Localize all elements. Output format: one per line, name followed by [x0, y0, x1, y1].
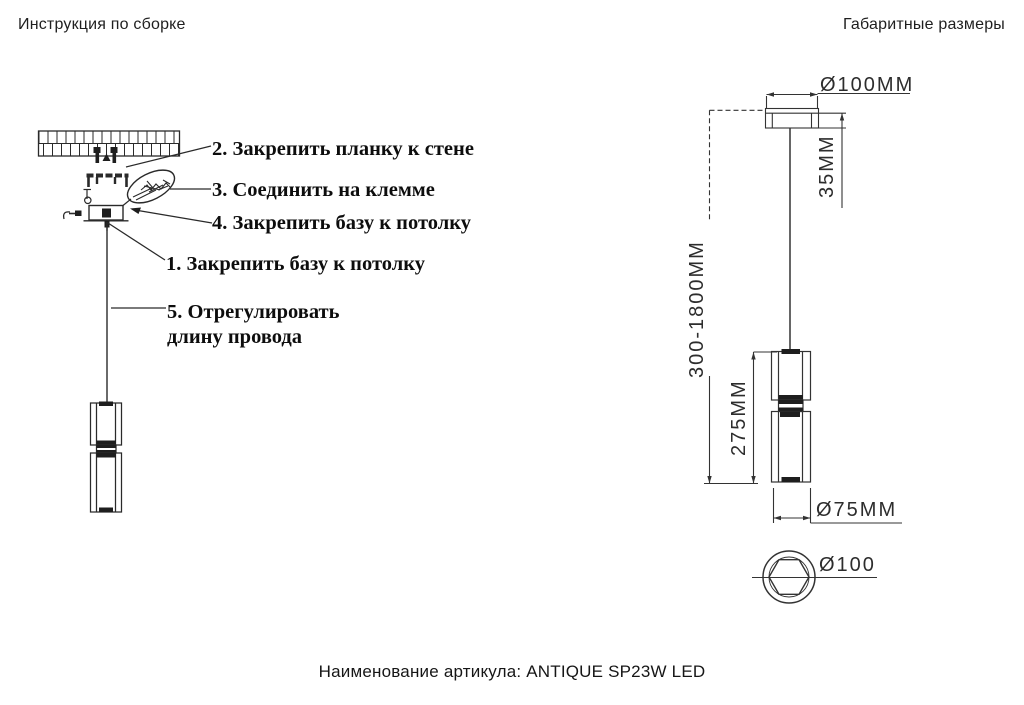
hook-icon — [84, 190, 92, 204]
wall-anchors — [94, 147, 118, 163]
leader-lines — [108, 146, 212, 308]
terminal-bubble-icon — [122, 163, 179, 209]
dim-base-bottom-diameter: Ø100 — [819, 555, 876, 576]
ceiling-hatch — [39, 131, 180, 156]
dim-body-height: 275MM — [729, 379, 750, 456]
technical-line-art — [0, 0, 1024, 705]
terminal-wires-icon — [133, 180, 170, 200]
dim-suspension-length: 300-1800MM — [687, 240, 708, 378]
mounting-plate — [87, 176, 129, 188]
dim-canopy-height: 35MM — [817, 134, 838, 198]
dim-lines-body-height — [751, 352, 777, 484]
dimensions-title: Габаритные размеры — [843, 16, 1005, 34]
ceiling-base — [84, 206, 129, 232]
dim-canopy-diameter: Ø100MM — [820, 75, 914, 96]
step-label-4: 4. Закрепить базу к потолку — [212, 211, 471, 236]
article-name-caption: Наименование артикула: ANTIQUE SP23W LED — [0, 662, 1024, 682]
step-label-2: 2. Закрепить планку к стене — [212, 137, 474, 162]
dim-shade-diameter: Ø75MM — [816, 500, 897, 521]
step-label-3: 3. Соединить на клемме — [212, 178, 435, 203]
screw-icon — [64, 211, 82, 220]
pendant-lamp-left — [91, 402, 122, 513]
dimension-drawing — [704, 92, 910, 603]
step-label-1: 1. Закрепить базу к потолку — [166, 252, 425, 277]
step-label-5-line1: 5. Отрегулировать — [167, 300, 339, 325]
assembly-title: Инструкция по сборке — [18, 16, 186, 34]
pendant-lamp-right — [772, 349, 811, 482]
canopy — [766, 109, 819, 129]
step-label-5: 5. Отрегулировать длину провода — [167, 300, 339, 349]
instruction-sheet: Инструкция по сборке Габаритные размеры … — [0, 0, 1024, 705]
step-label-5-line2: длину провода — [167, 325, 339, 350]
